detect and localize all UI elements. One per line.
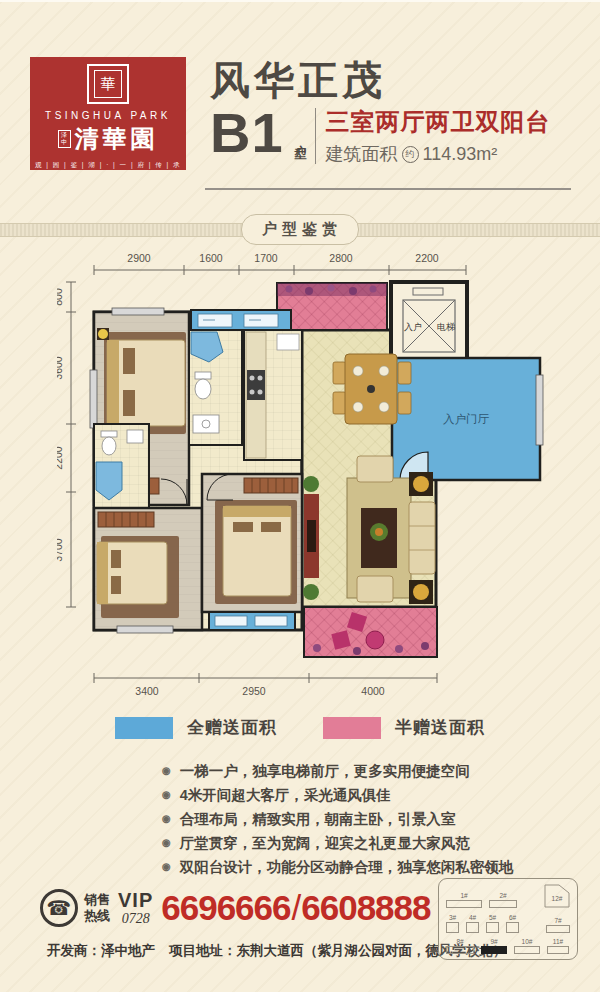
contact-hotline: ☎ 销售 热线 VIP 0728 6696666/6608888 — [40, 888, 431, 928]
section-banner: 户型鉴赏 — [0, 208, 600, 250]
bullet-icon: ◉ — [162, 786, 171, 804]
feature-text: 一梯一户，独享电梯前厅，更多实用便捷空间 — [180, 762, 470, 780]
phone-number-b: 6608888 — [301, 888, 430, 927]
svg-text:2950: 2950 — [242, 685, 266, 697]
banner-title: 户型鉴赏 — [241, 214, 359, 245]
logo-tagline: 观 | 园 | 鉴 | 湖 | · | 一 | 府 | 传 | 承 — [35, 161, 181, 170]
title-block: 风华正茂 B1 户型 三室两厅两卫双阳台 建筑面积 约 114.93m² — [210, 58, 551, 166]
brand-logo: 華 TSINGHUA PARK 泽中 清華園 观 | 园 | 鉴 | 湖 | ·… — [30, 57, 186, 170]
layout-spec: 三室两厅两卫双阳台 — [326, 106, 551, 138]
entry-hall-label: 入户门厅 — [443, 413, 490, 425]
svg-text:2200: 2200 — [57, 446, 64, 470]
bedroom-bottom-middle — [202, 474, 302, 612]
bullet-icon: ◉ — [162, 858, 171, 876]
elevator-label-right: 电梯 — [437, 322, 455, 332]
area-label: 建筑面积 — [326, 142, 398, 166]
svg-text:4000: 4000 — [361, 685, 385, 697]
building-9-highlighted: 9# — [481, 938, 507, 954]
bathroom-top — [189, 330, 242, 445]
svg-text:800: 800 — [57, 288, 64, 306]
seal-icon: 華 — [87, 64, 129, 104]
feature-item: ◉ 双阳台设计，功能分区动静合理，独享悠闲私密领地 — [162, 858, 513, 876]
svg-text:3600: 3600 — [57, 356, 64, 380]
mini-site-plan: 1# 2# 12# 3# 4# 5# 6# 7# — [438, 878, 578, 960]
entry-hall-full-gift: 入户门厅 — [392, 358, 543, 480]
logo-english-name: TSINGHUA PARK — [45, 110, 171, 121]
phone-number-a: 6696666 — [161, 888, 290, 927]
full-gift-swatch — [115, 717, 173, 739]
hotline-label-2: 热线 — [84, 908, 110, 924]
building-12: 12# — [544, 884, 570, 908]
area-spec: 建筑面积 约 114.93m² — [326, 142, 551, 166]
phone-icon: ☎ — [40, 889, 78, 927]
feature-list: ◉ 一梯一户，独享电梯前厅，更多实用便捷空间 ◉ 4米开间超大客厅，采光通风俱佳… — [162, 762, 513, 876]
logo-mini-seal: 泽中 — [58, 130, 71, 147]
floorplan-poster: 華 TSINGHUA PARK 泽中 清華園 观 | 园 | 鉴 | 湖 | ·… — [0, 0, 600, 992]
phone-numbers: 6696666/6608888 — [161, 888, 430, 928]
svg-text:3700: 3700 — [57, 538, 64, 562]
feature-item: ◉ 合理布局，精致实用，朝南主卧，引景入室 — [162, 810, 513, 828]
feature-text: 4米开间超大客厅，采光通风俱佳 — [180, 786, 391, 804]
building-8: 8# — [446, 938, 474, 954]
top-blue-strip-full-gift — [191, 310, 291, 332]
half-gift-label: 半赠送面积 — [395, 716, 485, 739]
svg-text:1700: 1700 — [254, 252, 278, 264]
developer-label: 开发商：泽中地产 — [47, 942, 155, 960]
bedroom-bottom-left — [94, 508, 202, 633]
svg-text:2200: 2200 — [415, 252, 439, 264]
feature-text: 合理布局，精致实用，朝南主卧，引景入室 — [180, 810, 456, 828]
floor-plan: 入户 电梯 入户门厅 — [57, 250, 545, 710]
legend-half-gift: 半赠送面积 — [323, 716, 485, 739]
svg-text:2900: 2900 — [127, 252, 151, 264]
building-3: 3# — [446, 914, 459, 933]
approx-icon: 约 — [402, 146, 419, 163]
seal-glyph: 華 — [101, 77, 116, 92]
building-5: 5# — [486, 914, 499, 933]
top-balcony-half-gift — [277, 283, 387, 330]
svg-text:1600: 1600 — [199, 252, 223, 264]
elevator-label-left: 入户 — [404, 322, 422, 332]
gift-area-legend: 全赠送面积 半赠送面积 — [0, 716, 600, 739]
page-title: 风华正茂 — [210, 58, 551, 102]
feature-item: ◉ 厅堂贯穿，至为宽阔，迎宾之礼更显大家风范 — [162, 834, 513, 852]
logo-chinese-name: 清華園 — [75, 123, 159, 155]
hotline-label-1: 销售 — [84, 892, 110, 908]
feature-item: ◉ 4米开间超大客厅，采光通风俱佳 — [162, 786, 513, 804]
building-6: 6# — [506, 914, 519, 933]
area-value: 114.93m² — [423, 144, 498, 165]
unit-type-label: 户型 — [292, 135, 309, 141]
legend-full-gift: 全赠送面积 — [115, 716, 277, 739]
elevator: 入户 电梯 — [391, 282, 467, 360]
unit-code: B1 — [210, 106, 284, 166]
svg-text:12#: 12# — [552, 895, 563, 902]
half-gift-swatch — [323, 717, 381, 739]
feature-text: 双阳台设计，功能分区动静合理，独享悠闲私密领地 — [180, 858, 514, 876]
feature-text: 厅堂贯穿，至为宽阔，迎宾之礼更显大家风范 — [180, 834, 470, 852]
vip-label: VIP — [118, 890, 153, 910]
phone-divider: / — [292, 888, 301, 927]
svg-text:3400: 3400 — [135, 685, 159, 697]
building-4: 4# — [466, 914, 479, 933]
svg-text:2800: 2800 — [329, 252, 353, 264]
building-11: 11# — [547, 938, 569, 954]
divider — [315, 108, 316, 164]
bullet-icon: ◉ — [162, 834, 171, 852]
bathroom-bottom — [94, 424, 149, 508]
area-code: 0728 — [122, 912, 150, 926]
title-underline — [205, 188, 571, 190]
building-1: 1# — [446, 892, 482, 908]
building-7: 7# — [546, 917, 570, 933]
kitchen — [244, 330, 302, 460]
feature-item: ◉ 一梯一户，独享电梯前厅，更多实用便捷空间 — [162, 762, 513, 780]
building-2: 2# — [489, 892, 517, 908]
bullet-icon: ◉ — [162, 762, 171, 780]
bottom-balcony-half-gift — [304, 607, 437, 657]
full-gift-label: 全赠送面积 — [187, 716, 277, 739]
bottom-blue-strip-full-gift — [209, 612, 295, 630]
building-10: 10# — [514, 938, 540, 954]
bullet-icon: ◉ — [162, 810, 171, 828]
